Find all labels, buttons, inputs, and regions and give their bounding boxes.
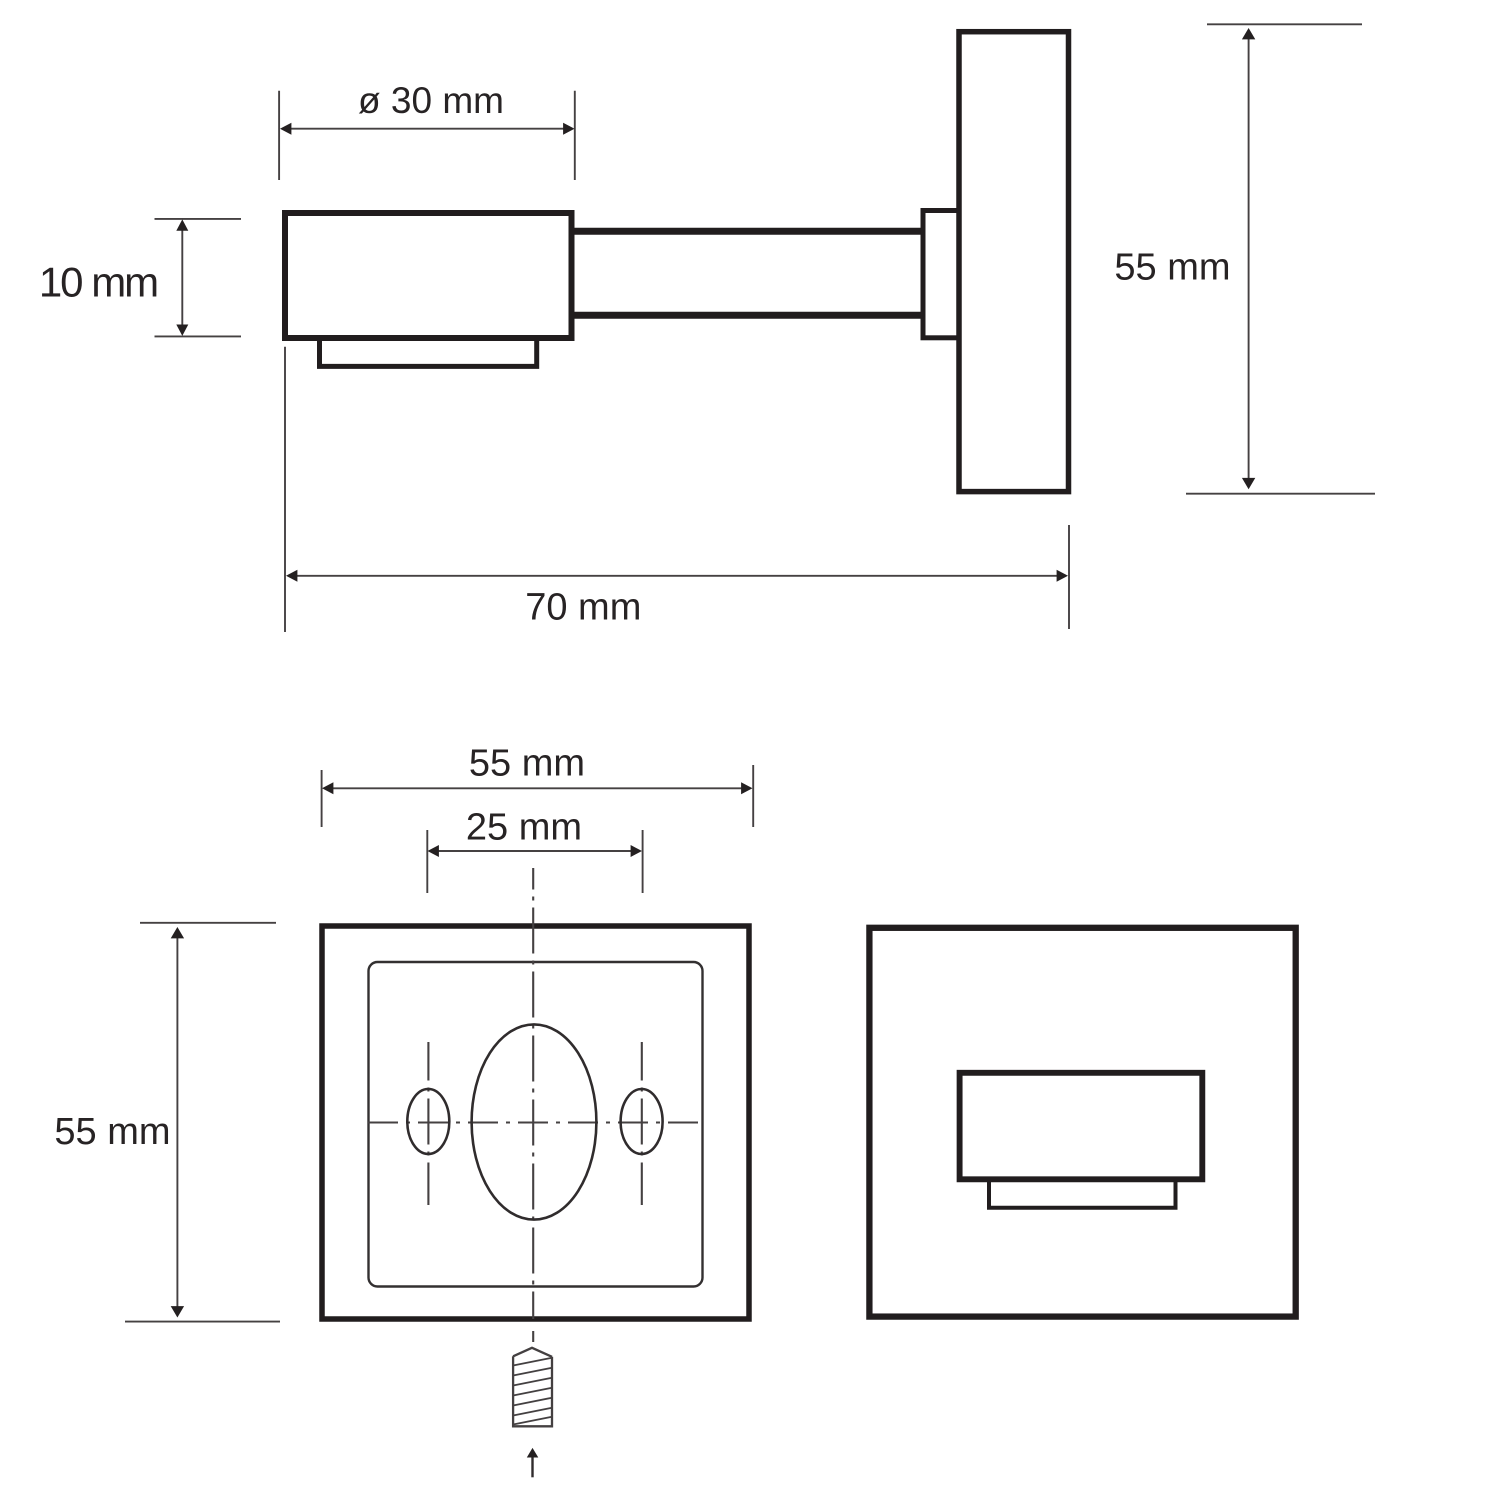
svg-text:10 mm: 10 mm <box>39 259 157 306</box>
svg-text:ø 30 mm: ø 30 mm <box>358 80 504 121</box>
svg-text:25 mm: 25 mm <box>466 807 582 849</box>
svg-text:55 mm: 55 mm <box>54 1111 170 1153</box>
svg-text:55 mm: 55 mm <box>1114 247 1230 289</box>
svg-text:70 mm: 70 mm <box>525 587 641 629</box>
svg-text:55 mm: 55 mm <box>469 743 585 785</box>
